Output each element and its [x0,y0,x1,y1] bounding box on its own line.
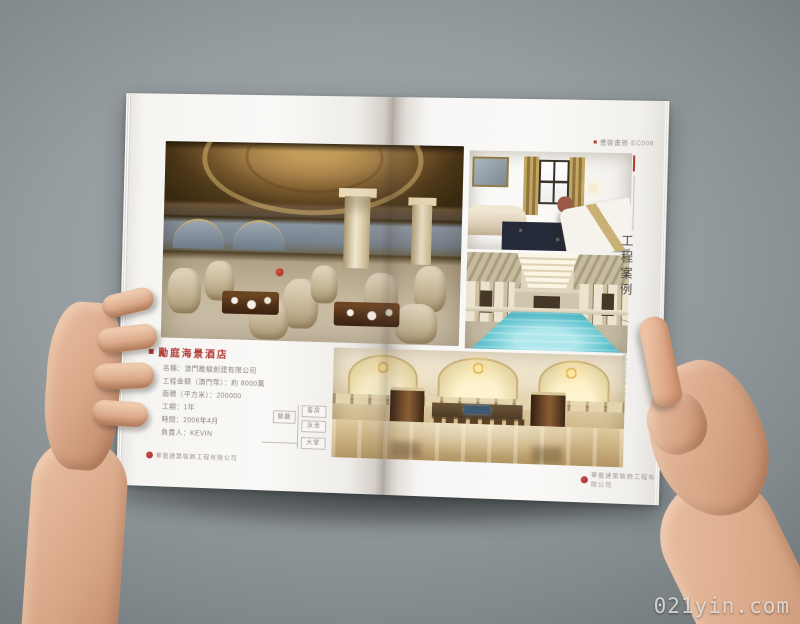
watermark: 021yin.com [654,594,790,618]
footer-logo-icon [146,451,153,458]
page-corner-header-label: 書裝畫冊·EC006 [600,136,655,147]
side-tab-slash: / [620,319,630,322]
side-tab: 工程案例 / GONGCHENG ANLI [613,234,636,403]
lobby-floor-reflection [391,441,421,458]
restaurant-arch-mirror [233,220,285,251]
caption-guest-room: 客房 [302,405,327,418]
header-bullet-icon [594,140,597,143]
restaurant-chair [167,268,201,314]
footer-company-name: 華藝建築裝飾工程有限公司 [591,470,660,491]
open-brochure: 勵庭海景酒店 名稱：澳門勵駿創建有限公司 工程金額（澳門幣）：約 8000萬 面… [116,93,669,505]
restaurant-photo [161,141,464,346]
side-tab-title: 工程案例 [618,234,634,299]
room-wall-art [472,156,509,187]
guest-room-photo [467,150,632,252]
caption-lobby: 大堂 [301,437,326,450]
right-page-footer: 華藝建築裝飾工程有限公司 [580,470,659,491]
restaurant-chair [395,303,438,344]
restaurant-dining-table [222,291,279,315]
restaurant-column [343,196,371,268]
footer-company-name: 華藝建築裝飾工程有限公司 [156,451,238,463]
spread-content: 勵庭海景酒店 名稱：澳門勵駿創建有限公司 工程金額（澳門幣）：約 8000萬 面… [116,93,669,505]
lobby-chandelier [378,359,388,373]
project-details: 名稱：澳門勵駿創建有限公司 工程金額（澳門幣）：約 8000萬 面積（平方米）：… [161,362,344,445]
restaurant-dining-table [334,302,400,328]
lobby-chandelier [473,360,483,374]
lobby-marble-floor [331,419,624,467]
caption-pool: 泳池 [301,420,326,433]
project-title: 勵庭海景酒店 [158,344,228,361]
room-lamp [588,183,597,193]
lobby-floor-reflection [531,446,562,463]
lobby-chandelier [566,364,577,378]
left-little-finger [91,399,149,428]
photo-scene: 勵庭海景酒店 名稱：澳門勵駿創建有限公司 工程金額（澳門幣）：約 8000萬 面… [0,0,800,624]
left-page-footer: 華藝建築裝飾工程有限公司 [146,450,238,462]
indoor-pool-photo [465,252,630,353]
page-corner-header: 書裝畫冊·EC006 [594,136,655,147]
restaurant-arch-mirror [173,218,224,249]
left-ring-finger [93,362,155,390]
side-tab-red-dash [633,155,635,171]
caption-restaurant: 餐廳 [273,410,296,424]
caption-connector-line [262,442,297,444]
room-curtain [523,156,540,215]
project-title-bullet-icon [149,349,154,354]
side-tab-subtitle: GONGCHENG ANLI [620,342,628,403]
lobby-photo [331,347,626,467]
restaurant-chair [310,265,338,304]
side-tab-rule-line [632,176,634,231]
restaurant-column [411,204,433,265]
footer-logo-icon [581,476,588,483]
restaurant-flower-centerpiece [276,268,284,276]
lobby-reception-sign [464,405,490,414]
